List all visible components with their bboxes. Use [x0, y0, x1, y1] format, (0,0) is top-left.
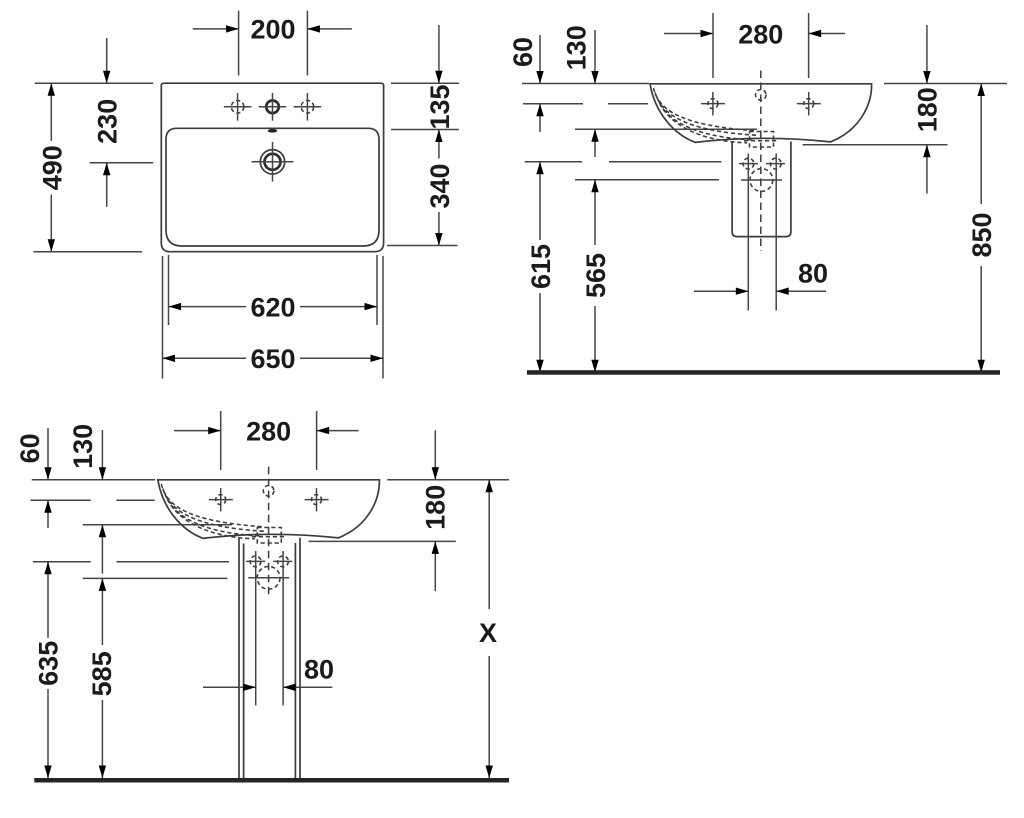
svg-text:615: 615 — [526, 244, 556, 289]
svg-text:340: 340 — [425, 163, 455, 208]
svg-text:80: 80 — [304, 654, 334, 684]
svg-text:850: 850 — [967, 212, 997, 257]
svg-text:180: 180 — [912, 87, 942, 132]
svg-text:585: 585 — [87, 651, 117, 696]
svg-text:650: 650 — [250, 344, 295, 374]
svg-text:490: 490 — [37, 145, 67, 190]
svg-text:80: 80 — [798, 258, 828, 288]
svg-text:130: 130 — [561, 25, 591, 70]
svg-text:60: 60 — [15, 433, 45, 463]
svg-text:280: 280 — [738, 19, 783, 49]
svg-text:620: 620 — [250, 292, 295, 322]
svg-text:135: 135 — [425, 84, 455, 129]
svg-text:180: 180 — [421, 485, 451, 530]
svg-text:635: 635 — [34, 641, 64, 686]
svg-text:X: X — [479, 618, 497, 648]
svg-text:130: 130 — [68, 424, 98, 469]
svg-text:565: 565 — [581, 253, 611, 298]
svg-text:230: 230 — [93, 99, 123, 144]
svg-text:280: 280 — [246, 416, 291, 446]
svg-text:200: 200 — [250, 15, 295, 45]
svg-text:60: 60 — [508, 37, 538, 67]
